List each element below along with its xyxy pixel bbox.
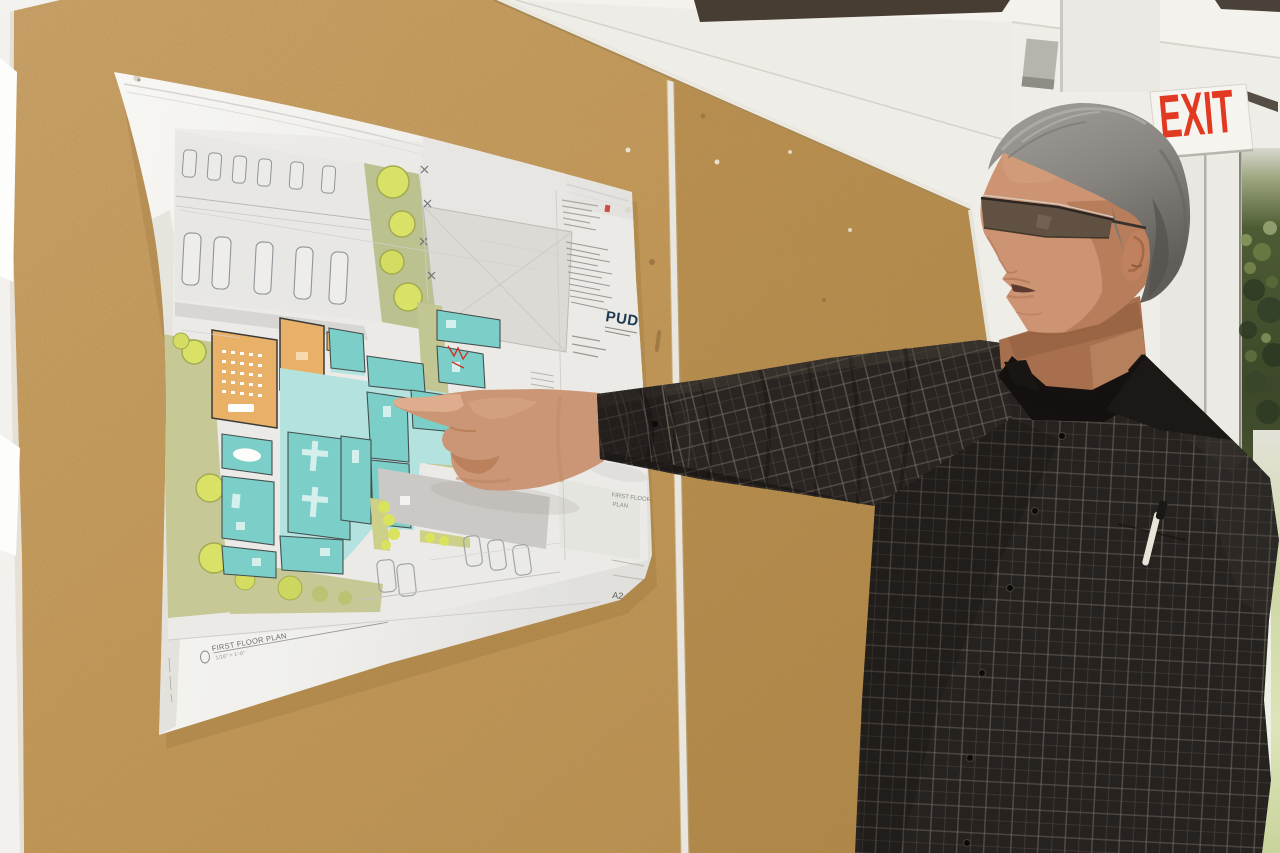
svg-text:EXIT: EXIT bbox=[1156, 77, 1236, 151]
